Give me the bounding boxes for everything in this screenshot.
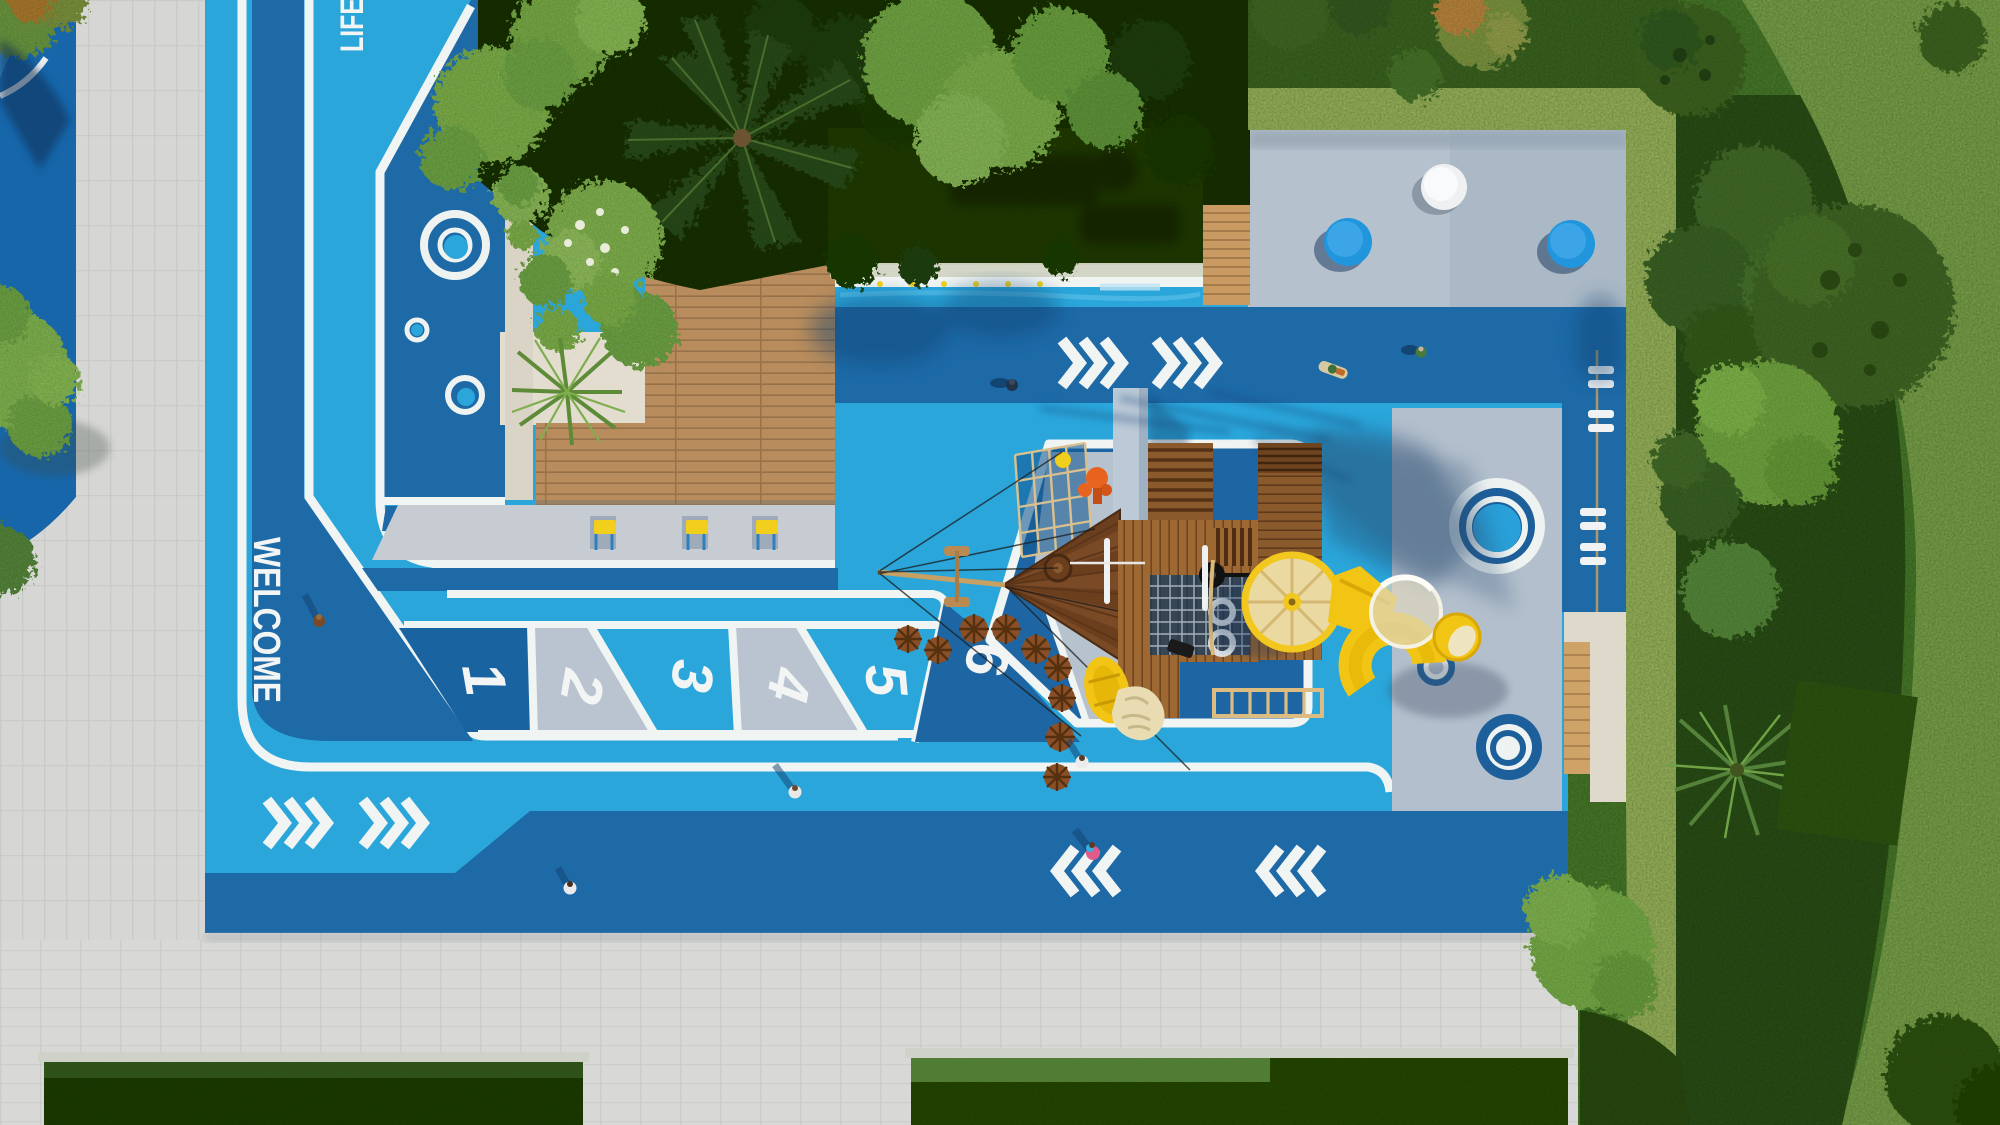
svg-text:LIFE: LIFE bbox=[334, 0, 370, 52]
svg-text:5: 5 bbox=[852, 661, 920, 700]
svg-text:3: 3 bbox=[658, 657, 726, 695]
svg-text:WELCOME: WELCOME bbox=[245, 537, 287, 703]
